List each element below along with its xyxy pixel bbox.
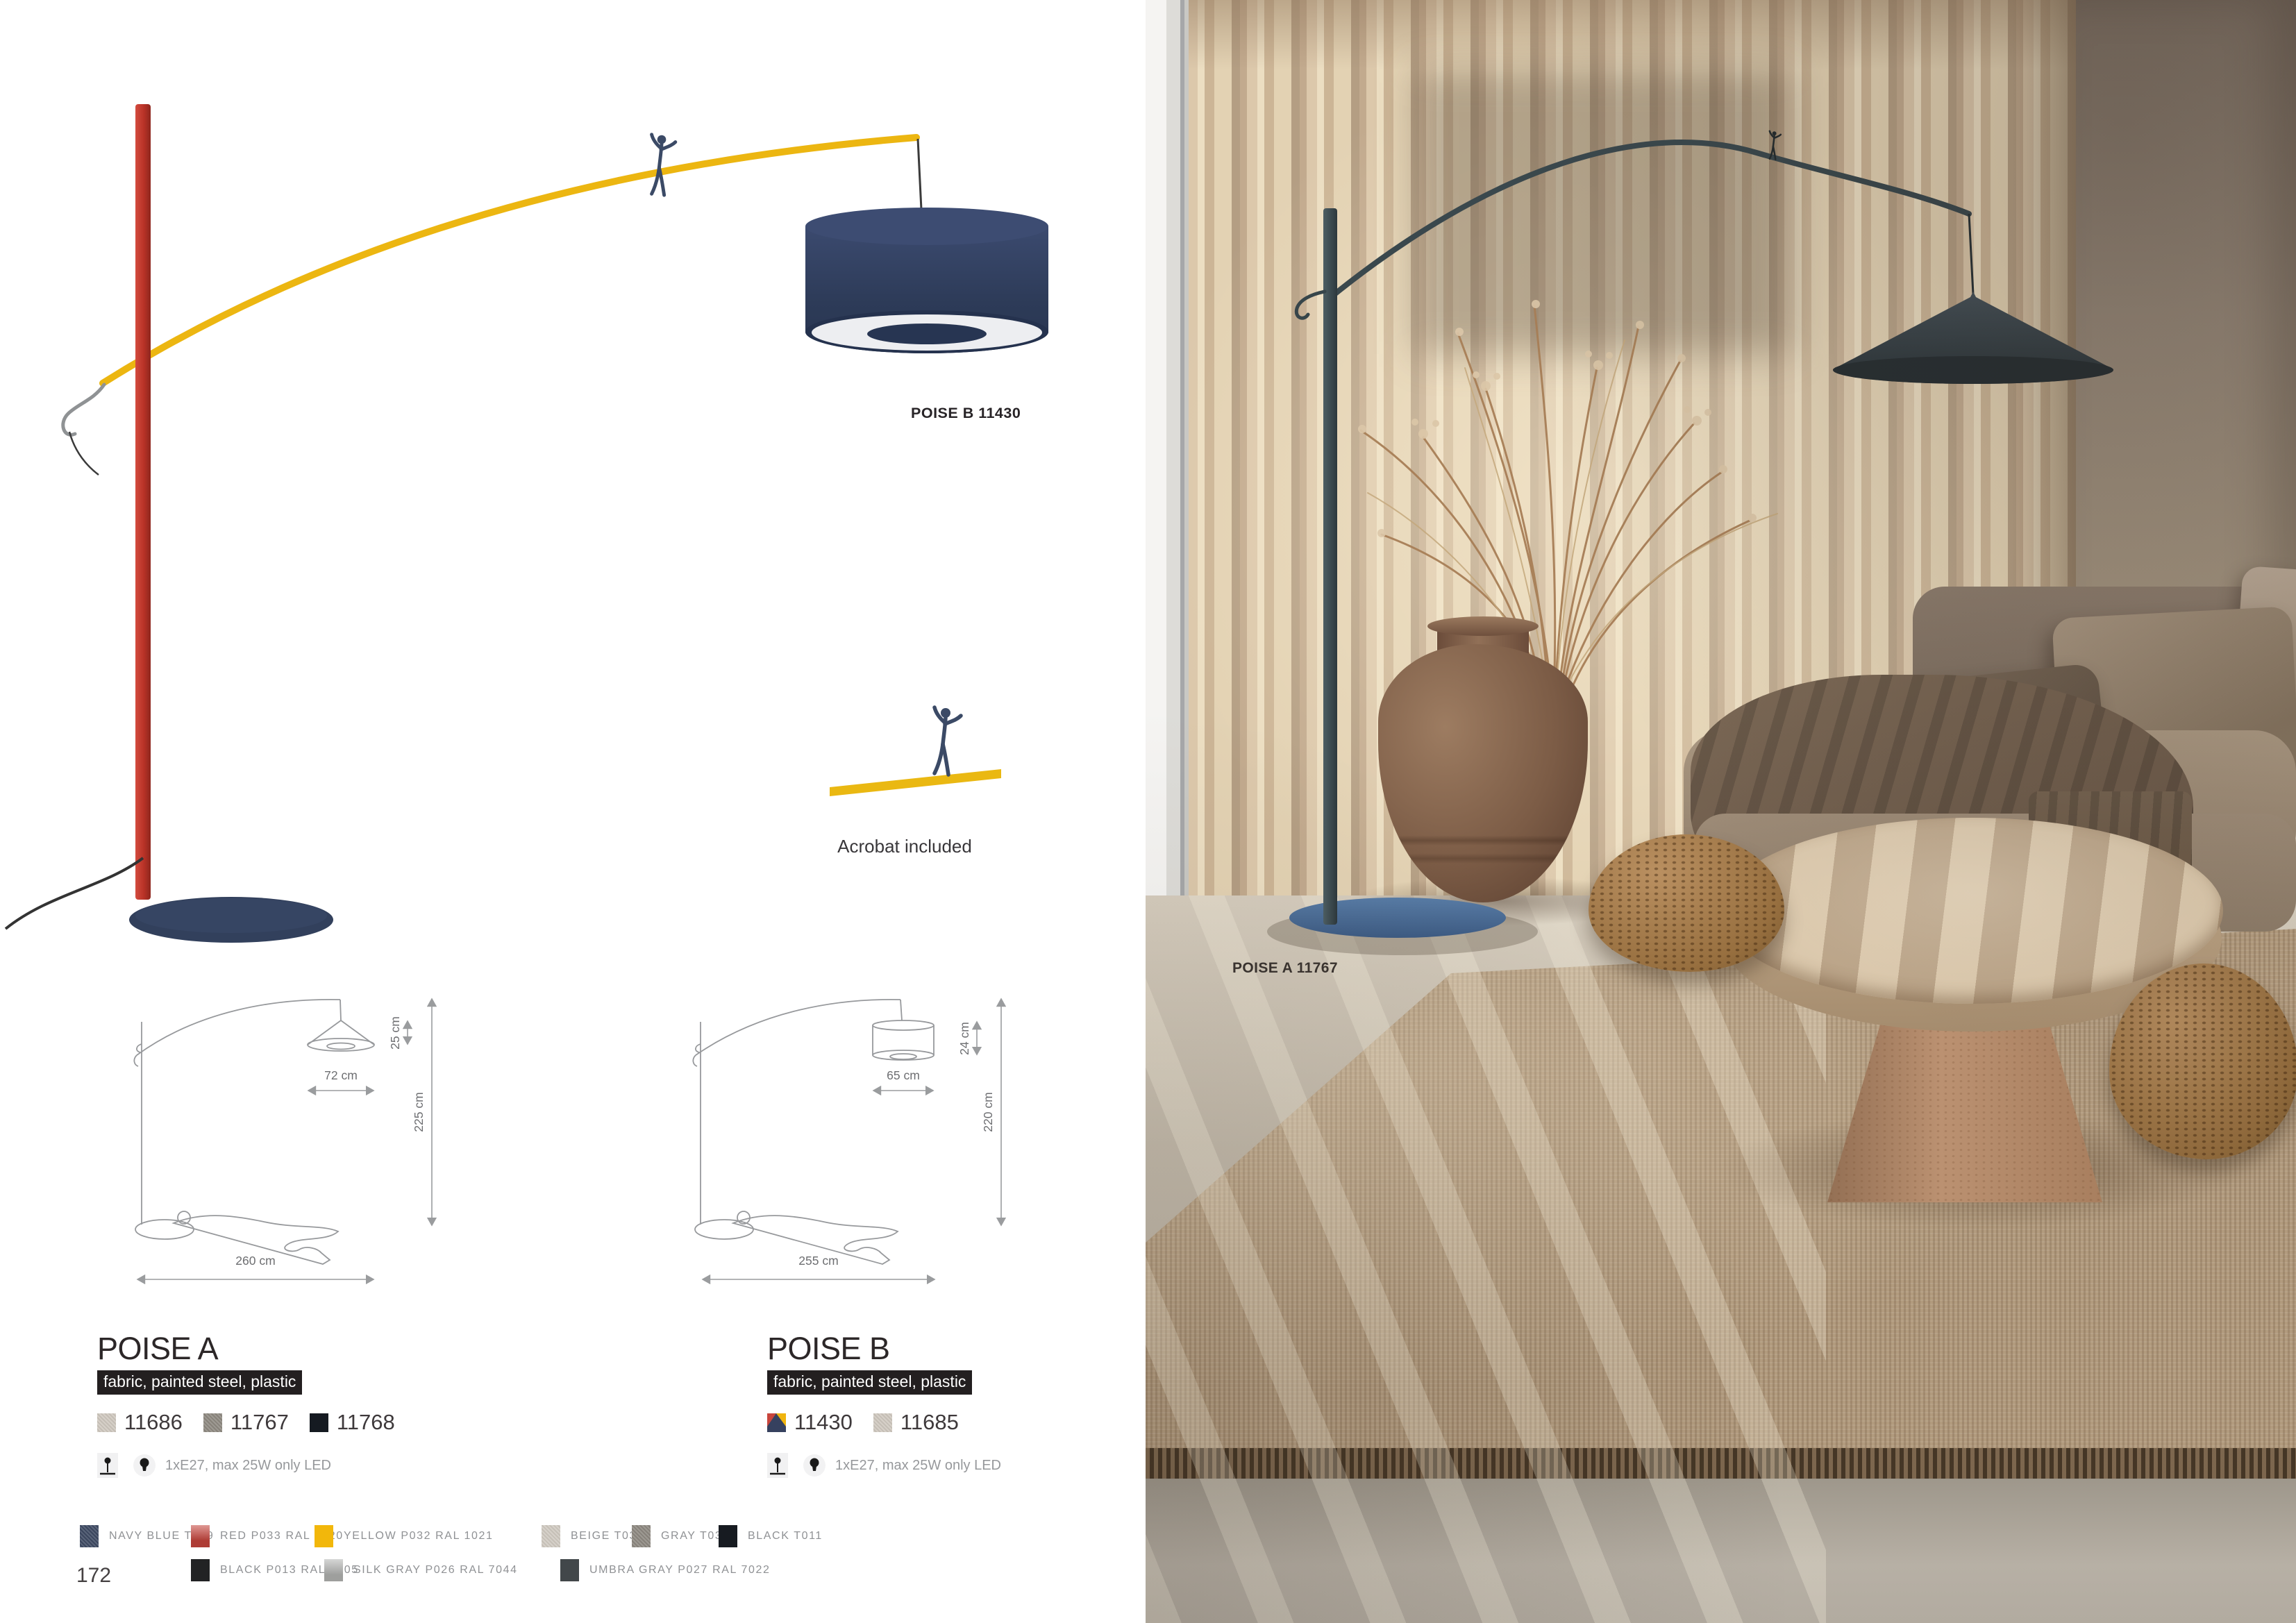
power-cord	[6, 858, 143, 929]
dim-shade-width: 72 cm	[324, 1068, 358, 1082]
cone-shade-bottom	[1833, 356, 2113, 384]
hook	[1296, 292, 1325, 318]
variant-swatch	[873, 1413, 892, 1432]
floor-lamp-icon	[767, 1453, 788, 1478]
color-swatch	[632, 1525, 651, 1547]
arc-arm	[1327, 142, 1969, 300]
hero-product-label: POISE B 11430	[911, 405, 1021, 422]
acrobat-figure	[652, 135, 676, 195]
variant-swatch-multicolor	[767, 1413, 786, 1432]
page-number: 172	[76, 1564, 111, 1588]
dim-height: 220 cm	[981, 1092, 995, 1132]
variant-code: 11685	[900, 1410, 959, 1435]
color-swatch	[191, 1525, 210, 1547]
hook	[63, 385, 104, 435]
product-title: POISE B	[767, 1333, 1128, 1364]
floor-lamp-icon	[97, 1453, 118, 1478]
variant-code: 11430	[794, 1410, 853, 1435]
legend-label: BLACK T011	[748, 1530, 823, 1542]
legend-item: BLACK T011	[719, 1525, 823, 1547]
variant-code: 11686	[124, 1410, 183, 1435]
legend-item: SILK GRAY P026 RAL 7044	[324, 1559, 518, 1581]
lamp-pole	[1323, 208, 1337, 925]
acrobat-figure	[935, 707, 961, 775]
legend-item: UMBRA GRAY P027 RAL 7022	[560, 1559, 770, 1581]
product-block-poise-b: POISE B fabric, painted steel, plastic 1…	[767, 1333, 1128, 1478]
balance-bar	[830, 769, 1001, 796]
poise-b-dimension-drawing: 24 cm 65 cm 220 cm 255 cm	[663, 977, 1010, 1304]
catalog-spread: POISE B 11430 Acrobat included	[0, 0, 2296, 1623]
legend-item: YELLOW P032 RAL 1021	[315, 1525, 494, 1547]
spec-text: 1xE27, max 25W only LED	[835, 1458, 1001, 1474]
photo-product-label: POISE A 11767	[1232, 960, 1338, 977]
product-title: POISE A	[97, 1333, 458, 1364]
bulb-icon	[133, 1454, 156, 1477]
product-materials-tag: fabric, painted steel, plastic	[97, 1370, 302, 1395]
catalog-page: POISE B 11430 Acrobat included	[0, 0, 1146, 1623]
arc-arm	[103, 137, 916, 383]
dim-shade-height: 25 cm	[388, 1016, 402, 1050]
lifestyle-photo: POISE A 11767	[1146, 0, 2296, 1623]
legend-label: SILK GRAY P026 RAL 7044	[353, 1564, 518, 1576]
coffee-table-top	[1720, 818, 2223, 1004]
dim-shade-width: 65 cm	[887, 1068, 920, 1082]
color-swatch	[719, 1525, 737, 1547]
legend-label: YELLOW P032 RAL 1021	[344, 1530, 494, 1542]
legend-item: BEIGE T034	[542, 1525, 644, 1547]
bulb-icon	[803, 1454, 826, 1477]
poise-a-dimension-drawing: 25 cm 72 cm 225 cm 260 cm	[94, 977, 441, 1304]
base-disc	[1289, 898, 1506, 938]
dim-height: 225 cm	[412, 1092, 426, 1132]
dim-shade-height: 24 cm	[957, 1022, 971, 1055]
lamp-pole	[135, 104, 151, 900]
variant-swatch	[310, 1413, 328, 1432]
suspension-cable	[1969, 214, 1973, 294]
color-swatch	[324, 1559, 343, 1581]
color-swatch	[315, 1525, 333, 1547]
hook-wire	[69, 432, 99, 475]
legend-item: GRAY T035	[632, 1525, 730, 1547]
product-materials-tag: fabric, painted steel, plastic	[767, 1370, 972, 1395]
dim-width: 260 cm	[235, 1254, 275, 1268]
drum-hole	[867, 323, 987, 344]
variant-swatch	[203, 1413, 222, 1432]
color-swatch	[80, 1525, 99, 1547]
variant-swatch	[97, 1413, 116, 1432]
variant-code: 11767	[231, 1410, 289, 1435]
color-swatch	[560, 1559, 579, 1581]
acrobat-included-illustration	[819, 686, 1014, 800]
acrobat-included-note: Acrobat included	[811, 836, 998, 857]
dim-width: 255 cm	[798, 1254, 838, 1268]
poise-a-photo-lamp	[1146, 0, 2296, 1623]
color-swatch	[542, 1525, 560, 1547]
spec-text: 1xE27, max 25W only LED	[165, 1458, 331, 1474]
product-block-poise-a: POISE A fabric, painted steel, plastic 1…	[97, 1333, 458, 1478]
acrobat-figure	[1770, 131, 1781, 160]
variant-code: 11768	[337, 1410, 395, 1435]
legend-label: UMBRA GRAY P027 RAL 7022	[589, 1564, 770, 1576]
color-swatch	[191, 1559, 210, 1581]
